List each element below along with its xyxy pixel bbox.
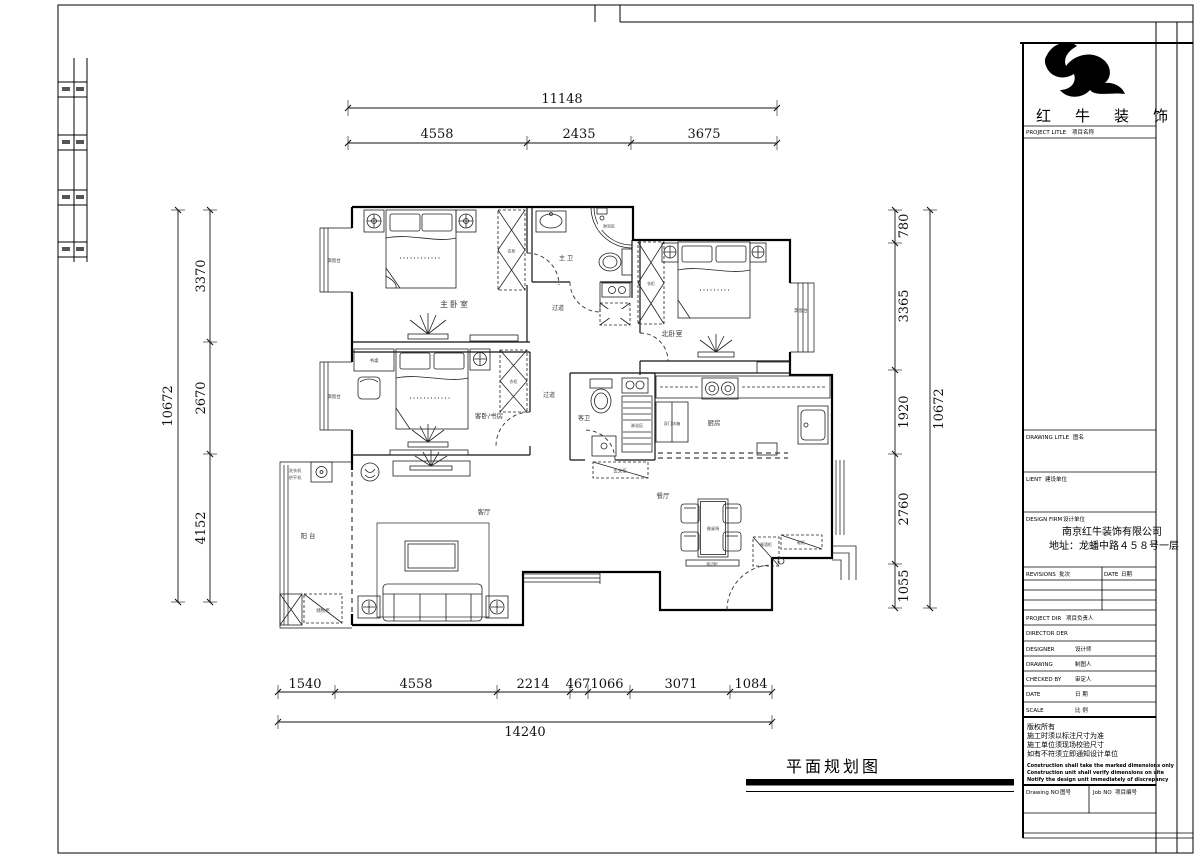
guest-wardrobe: 衣柜 xyxy=(500,350,527,412)
bay-window-label: 飘窗台 xyxy=(327,393,341,400)
project-title-zh: 项目名称 xyxy=(1072,128,1095,136)
fridge-label: 双门冰箱 xyxy=(664,420,681,427)
dim-value: 3071 xyxy=(664,677,697,692)
dining-set-label: 餐桌椅 xyxy=(707,525,720,532)
shower-label-guest: 淋浴区 xyxy=(631,422,644,429)
title-block: 红牛装饰 PROJECT LITLE 项目名称 DRAWING LITLE 图名… xyxy=(1020,43,1193,838)
dim-value: 2670 xyxy=(194,381,209,414)
dim-value: 467 xyxy=(566,677,591,692)
brand-logo-icon: 红牛装饰 xyxy=(1036,43,1192,125)
dim-right-total: 10672 xyxy=(923,207,947,611)
dim-top-segments: 4558 2435 3675 xyxy=(345,127,780,150)
footer: 平面规划图 xyxy=(746,757,1014,792)
date-zh: 日 期 xyxy=(1075,691,1088,698)
strip-entries xyxy=(62,87,84,251)
partition-walls xyxy=(352,207,790,460)
balcony-fixtures xyxy=(280,462,342,625)
drawing-no-zh: 图号 xyxy=(1060,788,1072,796)
dim-value: 10672 xyxy=(161,385,176,426)
company-name: 南京红牛装饰有限公司 xyxy=(1062,525,1162,538)
dim-value: 14240 xyxy=(504,725,545,740)
brand-name: 红牛装饰 xyxy=(1036,107,1192,125)
dim-value: 10672 xyxy=(932,388,947,429)
master-bath-fixtures xyxy=(536,207,632,297)
wine-cabinet-label: 餐酒柜 xyxy=(760,541,772,547)
note-line-en: Construction unit shall verify dimension… xyxy=(1027,770,1165,776)
project-title-en: PROJECT LITLE xyxy=(1026,130,1067,136)
dim-value: 2214 xyxy=(516,677,549,692)
room-dining: 餐厅 xyxy=(657,491,671,500)
shoe-cabinet-label: 鞋柜 xyxy=(797,539,805,545)
north-wardrobe: 衣柜 xyxy=(638,242,664,324)
bay-window-label: 飘窗台 xyxy=(327,257,341,264)
washer-label-1: 洗衣机 xyxy=(289,467,302,474)
wardrobe-label: 衣柜 xyxy=(508,248,516,254)
project-dir-en: PROJECT DIR xyxy=(1026,616,1061,622)
storage-label: 储物柜 xyxy=(316,607,330,614)
dim-value: 3370 xyxy=(194,259,209,292)
copyright-notes-en: Construction shall take the marked dimen… xyxy=(1027,763,1175,783)
checked-by-zh: 审定人 xyxy=(1075,675,1092,683)
dim-top-total: 11148 xyxy=(345,92,780,116)
room-master-bedroom: 主卧室 xyxy=(440,299,470,309)
windows xyxy=(280,228,856,628)
bay-window-label: 飘窗台 xyxy=(794,307,808,314)
drawing-title-en: DRAWING LITLE xyxy=(1026,435,1070,441)
dim-value: 1920 xyxy=(897,395,912,428)
scale-zh: 比 例 xyxy=(1075,706,1088,714)
washer-label-2: 烘干机 xyxy=(289,474,302,481)
client-zh: 建设单位 xyxy=(1045,475,1068,483)
design-firm-zh: 设计单位 xyxy=(1063,515,1086,523)
page-title: 平面规划图 xyxy=(786,757,881,776)
note-line: 版权所有 xyxy=(1027,722,1055,731)
copyright-notes: 版权所有 施工时须以标注尺寸为准 施工单位须现场校验尺寸 如有不符须立即通知设计… xyxy=(1027,722,1118,758)
job-no-en: Job NO xyxy=(1092,790,1112,796)
dim-value: 1066 xyxy=(590,677,623,692)
dining-set xyxy=(593,462,822,566)
drawing-title-zh: 图名 xyxy=(1073,433,1084,441)
doors xyxy=(496,253,772,610)
designer-zh: 设计师 xyxy=(1075,645,1092,653)
wardrobe-label: 衣柜 xyxy=(647,280,655,286)
date-en: DATE xyxy=(1026,692,1041,698)
dim-value: 2435 xyxy=(562,127,595,142)
room-guest-bedroom: 客卧/书房 xyxy=(475,411,503,420)
room-living: 客厅 xyxy=(478,507,492,516)
dim-value: 2760 xyxy=(897,492,912,525)
plan-labels: 主卧室 北卧室 客卧/书房 主 卫 客卫 过道 过道 厨房 餐厅 客厅 阳 台 … xyxy=(289,223,809,615)
master-wardrobe: 衣柜 xyxy=(498,210,525,290)
room-master-bath: 主 卫 xyxy=(559,254,573,262)
dim-value: 3365 xyxy=(897,289,912,322)
dim-value: 1084 xyxy=(734,677,767,692)
outer-walls xyxy=(352,207,832,625)
dim-bottom-total: 14240 xyxy=(275,715,775,740)
furniture-layer: 衣柜 xyxy=(280,207,830,625)
corridor-cabinet xyxy=(600,303,630,325)
wardrobe-label: 衣柜 xyxy=(510,378,518,384)
job-no-zh: 项目编号 xyxy=(1115,788,1138,796)
company-address: 地址：龙蟠中路４５８号一层 xyxy=(1049,539,1179,552)
north-bed xyxy=(662,242,766,318)
note-line: 如有不符须立即通知设计单位 xyxy=(1027,749,1118,758)
guest-bath-fixtures xyxy=(590,378,652,456)
dim-bottom-segments: 1540 4558 2214 467 1066 3071 1084 xyxy=(275,677,775,699)
master-bed xyxy=(364,210,476,288)
dim-right-segments: 780 3365 1920 2760 1055 xyxy=(888,207,912,611)
note-line: 施工时须以标注尺寸为准 xyxy=(1027,731,1104,740)
north-ceiling-lamp xyxy=(698,334,790,373)
room-north-bedroom: 北卧室 xyxy=(662,329,683,338)
room-guest-bath: 客卫 xyxy=(578,414,590,422)
room-corridor-2: 过道 xyxy=(543,391,555,399)
revisions-en: REVISIONS xyxy=(1026,572,1056,578)
floor-plan-svg: 衣柜 xyxy=(0,0,1200,860)
title-underline-bar xyxy=(746,779,1014,786)
date-header-zh: 日期 xyxy=(1121,571,1133,578)
dim-value: 780 xyxy=(897,214,912,239)
shower-label-master: 淋浴区 xyxy=(603,223,615,229)
designer-en: DESIGNER xyxy=(1026,647,1055,653)
dim-value: 1540 xyxy=(288,677,321,692)
drawing-no-en: Drawing NO xyxy=(1026,790,1060,796)
desk-label: 书桌 xyxy=(370,357,379,364)
drawing-by-zh: 制图人 xyxy=(1075,660,1092,668)
checked-by-en: CHECKED BY xyxy=(1026,677,1062,683)
drawing-sheet: 衣柜 xyxy=(0,0,1200,860)
room-balcony: 阳 台 xyxy=(300,531,315,540)
dim-value: 1055 xyxy=(897,569,912,602)
design-firm-en: DESIGN FIRM xyxy=(1026,517,1063,523)
dim-value: 3675 xyxy=(687,127,720,142)
date-header-en: DATE xyxy=(1104,572,1119,578)
dim-value: 11148 xyxy=(541,92,582,107)
room-kitchen: 厨房 xyxy=(708,418,721,427)
note-line-en: Construction shall take the marked dimen… xyxy=(1027,763,1175,769)
sideboard-label: 餐边柜 xyxy=(706,562,718,567)
dim-value: 4558 xyxy=(399,677,432,692)
dim-value: 4558 xyxy=(420,127,453,142)
director-en: DIRECTOR DER xyxy=(1026,631,1068,637)
client-en: LIENT xyxy=(1026,477,1042,483)
dim-value: 4152 xyxy=(194,511,209,544)
project-dir-zh: 项目负责人 xyxy=(1066,614,1094,622)
dim-left-segments: 3370 2670 4152 xyxy=(194,207,217,605)
entry-cabinet-label: 玄关柜 xyxy=(613,468,627,475)
dimensions: 11148 4558 2435 3675 1540 4558 2214 467 … xyxy=(161,92,947,740)
scale-en: SCALE xyxy=(1026,708,1044,714)
drawing-by-en: DRAWING xyxy=(1026,662,1053,668)
revisions-zh: 批次 xyxy=(1059,570,1071,578)
note-line-en: Notify the design unit immediately of di… xyxy=(1027,777,1169,783)
left-revision-strip xyxy=(58,58,87,262)
kitchen-fixtures xyxy=(656,376,830,455)
note-line: 施工单位须现场校验尺寸 xyxy=(1027,740,1104,749)
master-ceiling-lamp xyxy=(408,313,518,341)
dim-left-total: 10672 xyxy=(161,207,185,605)
living-furniture xyxy=(358,450,508,621)
room-corridor-1: 过道 xyxy=(552,304,564,312)
